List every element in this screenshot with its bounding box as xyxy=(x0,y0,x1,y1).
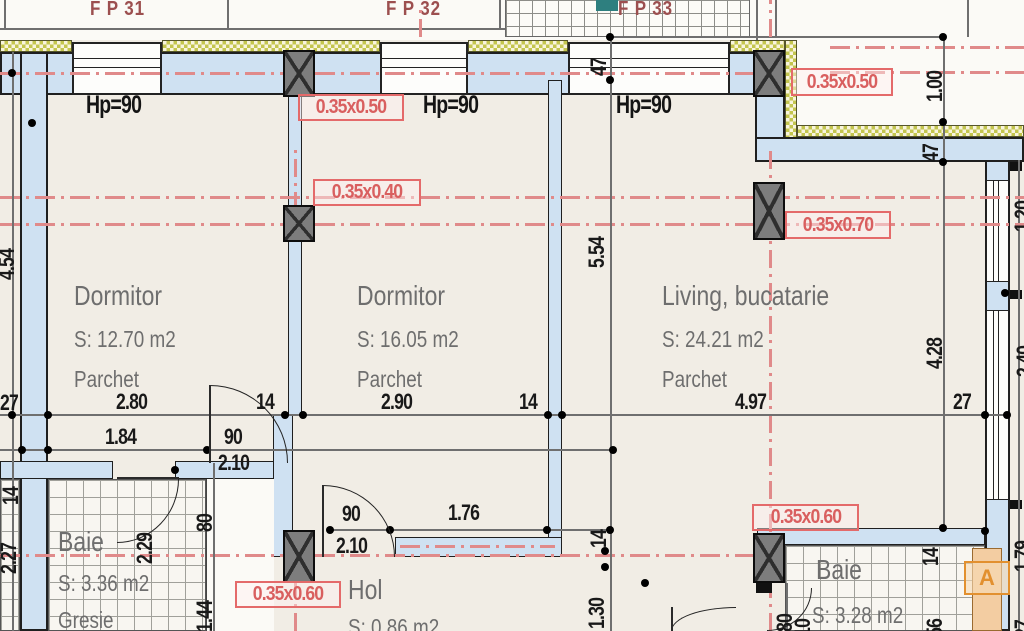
dim-dot xyxy=(606,33,614,41)
dim-label: 47 xyxy=(918,144,944,162)
dim-dot xyxy=(606,76,614,84)
dim-dot xyxy=(1003,411,1011,419)
column xyxy=(753,533,785,583)
dim-dot xyxy=(601,547,609,555)
window-tag-fp32: F P 32 xyxy=(386,0,441,21)
dim-label: 14 xyxy=(256,389,274,415)
dim-label: 1.44 xyxy=(192,601,218,631)
dim-dot xyxy=(44,411,52,419)
dim-label: 90 xyxy=(342,501,360,527)
dim-dot xyxy=(18,446,26,454)
beam-label: 0.35x0.50 xyxy=(791,68,893,96)
dim-label: 47 xyxy=(586,58,612,76)
door-arc-living-entry xyxy=(671,607,736,631)
dim-label: 4.28 xyxy=(922,338,948,369)
axis-tick-top xyxy=(419,8,422,37)
axis-line-vertical-top xyxy=(769,0,772,37)
dim-label: 1.00 xyxy=(922,71,948,102)
window-right-2 xyxy=(986,310,1009,500)
wall-baie-left-top-a xyxy=(0,461,113,479)
parapet-label: Hp=90 xyxy=(423,91,478,120)
column xyxy=(753,182,785,240)
beam-label: 0.35x0.60 xyxy=(235,581,341,608)
dim-label: 4.97 xyxy=(735,389,766,415)
dim-dot xyxy=(939,33,947,41)
dim-dot xyxy=(601,563,609,571)
beam-label: 0.35x0.60 xyxy=(752,504,859,531)
dim-label: 2.10 xyxy=(790,619,816,631)
balcony-rail-line xyxy=(499,0,501,28)
dimension-line-top xyxy=(610,36,944,38)
wall-dormitor2-living xyxy=(548,80,562,557)
dim-dot xyxy=(981,527,989,535)
axis-line-mid-a xyxy=(0,196,1024,199)
dim-label: 2.90 xyxy=(381,389,412,415)
room-floor-baie-left: Gresie xyxy=(58,607,114,631)
dim-dot xyxy=(939,118,947,126)
balcony-window-marker xyxy=(596,0,618,11)
insulation-hatch xyxy=(468,40,568,52)
axis-line-top-right-a xyxy=(830,46,1024,49)
dim-label: 1.84 xyxy=(105,424,136,450)
room-name-living: Living, bucatarie xyxy=(662,280,829,312)
floor-plan-canvas: F P 31 F P 32 F P 33 xyxy=(0,0,1024,631)
exterior-wall-living-top xyxy=(755,137,1024,162)
door-leaf-dormitor1 xyxy=(209,385,211,463)
dim-label: 5.54 xyxy=(584,237,610,268)
section-marker-label: A xyxy=(979,565,995,591)
column xyxy=(283,50,315,97)
dim-label: 27 xyxy=(953,389,971,415)
dim-dot xyxy=(544,411,552,419)
dim-label: 90 xyxy=(224,424,242,450)
dim-label: 14 xyxy=(918,548,944,566)
exterior-area-top-right xyxy=(785,0,1024,125)
room-name-dormitor1: Dormitor xyxy=(74,280,162,312)
dim-dot xyxy=(8,69,16,77)
window-dim-mark xyxy=(1010,290,1022,299)
exterior-wall-step xyxy=(755,95,785,139)
parapet-label: Hp=90 xyxy=(86,91,141,120)
dim-label: 80 xyxy=(192,514,218,532)
room-name-hol: Hol xyxy=(348,574,382,606)
insulation-hatch xyxy=(162,40,380,52)
window-dim-mark xyxy=(1010,162,1022,171)
room-name-baie-right: Baie xyxy=(816,554,862,586)
dim-dot xyxy=(171,466,179,474)
room-name-dormitor2: Dormitor xyxy=(357,280,445,312)
parapet-label: Hp=90 xyxy=(616,91,671,120)
door-leaf-baie-left xyxy=(117,477,179,479)
terrace-edge-line xyxy=(967,0,969,37)
room-area-baie-left: S: 3.36 m2 xyxy=(58,570,149,597)
dim-dot xyxy=(281,411,289,419)
dim-dot xyxy=(44,446,52,454)
door-leaf-hol xyxy=(322,485,324,557)
dimension-line-vertical-right xyxy=(943,37,945,530)
dimension-line-horizontal-main xyxy=(0,414,1010,416)
room-area-dormitor2: S: 16.05 m2 xyxy=(357,326,459,353)
dim-label: 27 xyxy=(0,390,18,416)
window-tag-fp33: F P 33 xyxy=(618,0,673,21)
beam-label: 0.35x0.40 xyxy=(313,179,421,206)
window-dormitor2 xyxy=(380,42,468,95)
dim-label: 1.56 xyxy=(922,619,948,631)
window-dim-mark xyxy=(1010,500,1022,509)
dim-label: 2.80 xyxy=(116,389,147,415)
dim-label: 2.27 xyxy=(0,543,22,574)
dim-dot xyxy=(981,411,989,419)
balcony-rail-line xyxy=(227,0,229,28)
column xyxy=(283,205,315,242)
room-area-living: S: 24.21 m2 xyxy=(662,326,764,353)
beam-label: 0.35x0.50 xyxy=(298,94,404,121)
dim-label: 1.20 xyxy=(1010,201,1024,232)
balcony-edge-line xyxy=(0,28,506,30)
dim-label: 4.54 xyxy=(0,249,20,280)
dim-label: 1.79 xyxy=(1010,541,1024,572)
dim-dot xyxy=(641,579,649,587)
dim-dot xyxy=(558,411,566,419)
dim-label: 2.40 xyxy=(1012,346,1024,377)
dim-label: 14 xyxy=(519,389,537,415)
dimension-line-horizontal-second xyxy=(0,449,613,451)
dim-label: 2.10 xyxy=(218,450,249,476)
axis-line-top-wall xyxy=(0,72,757,75)
room-area-dormitor1: S: 12.70 m2 xyxy=(74,326,176,353)
dim-dot xyxy=(1001,289,1009,297)
section-marker-a: A xyxy=(964,561,1010,595)
room-floor-living: Parchet xyxy=(662,366,727,393)
dim-label: 14 xyxy=(0,487,24,505)
wall-dormitor1-dormitor2 xyxy=(288,95,302,415)
room-area-baie-right: S: 3.28 m2 xyxy=(812,602,903,629)
dim-label: 2.10 xyxy=(336,533,367,559)
window-dormitor1 xyxy=(72,42,162,95)
exterior-wall-left xyxy=(20,52,48,631)
balcony-rail-line xyxy=(4,0,6,28)
dim-dot xyxy=(28,119,36,127)
door-leaf-living-entry xyxy=(671,607,673,631)
window-tag-fp31: F P 31 xyxy=(90,0,145,21)
dim-label: 14 xyxy=(586,530,612,548)
dim-dot xyxy=(543,526,551,534)
column xyxy=(753,50,785,97)
dim-label: 1.76 xyxy=(448,500,479,526)
insulation-hatch xyxy=(0,40,72,52)
dim-dot xyxy=(299,411,307,419)
dim-label: 1.30 xyxy=(584,598,610,629)
terrace-edge-line xyxy=(775,0,777,37)
axis-line-vertical-col-mid xyxy=(294,150,297,210)
insulation-hatch xyxy=(797,125,1024,137)
dim-dot xyxy=(609,446,617,454)
axis-line-hol-wall xyxy=(400,545,555,548)
dim-dot xyxy=(939,524,947,532)
dim-label: 2.29 xyxy=(132,533,158,564)
room-name-baie-left: Baie xyxy=(58,526,104,558)
beam-label: 0.35x0.70 xyxy=(785,211,891,239)
dim-label: 27 xyxy=(1010,620,1024,631)
room-area-hol: S: 0.86 m2 xyxy=(348,614,439,631)
column xyxy=(283,530,315,583)
